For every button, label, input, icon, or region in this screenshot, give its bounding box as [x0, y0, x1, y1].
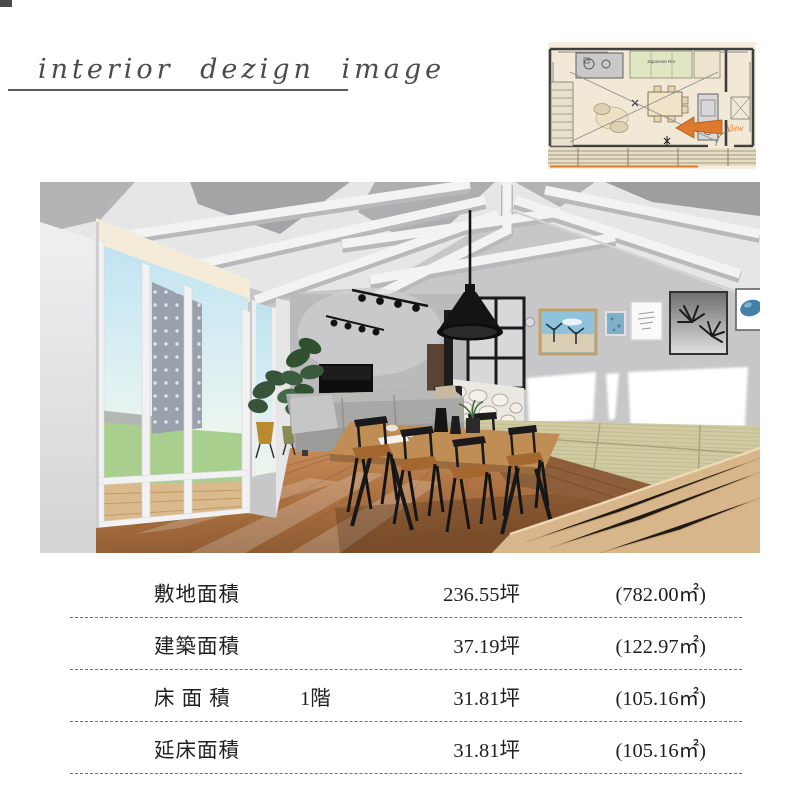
page-title: interior dezign image	[38, 54, 445, 85]
wall-sconce	[526, 318, 535, 327]
frame-blue-oval	[736, 289, 760, 330]
interior-rendering	[40, 182, 760, 553]
row-label: 延床面積	[70, 733, 300, 763]
row-sqm-value: (782.00㎡)	[520, 577, 742, 607]
frame-bw-palms	[670, 292, 727, 354]
table-row-building-area: 建築面積 37.19坪 (122.97㎡)	[70, 618, 742, 670]
frame-beach-photo	[540, 310, 596, 354]
row-label: 敷地面積	[70, 577, 300, 607]
throw-blanket	[290, 395, 338, 434]
row-sqm-value: (105.16㎡)	[520, 733, 742, 763]
floor-plan-thumbnail: Japanese Rm	[548, 42, 756, 169]
row-floor: 1階	[300, 681, 362, 711]
row-label: 建築面積	[70, 629, 300, 659]
plan-kitchen	[576, 53, 623, 78]
plan-bath	[731, 97, 750, 119]
row-sqm-value: (105.16㎡)	[520, 681, 742, 711]
row-tsubo-value: 37.19坪	[362, 629, 520, 659]
left-wall	[40, 222, 96, 553]
plan-japanese-room: Japanese Rm	[630, 51, 692, 78]
scan-corner-mark	[0, 0, 12, 7]
plan-stairs	[551, 82, 573, 146]
row-tsubo-value: 31.81坪	[362, 681, 520, 711]
patterned-screen	[152, 282, 202, 434]
frame-typography	[631, 302, 662, 340]
row-label: 床 面 積	[70, 681, 300, 711]
presentation-page: interior dezign image	[0, 0, 800, 800]
interior-rendering-graphic	[40, 182, 760, 553]
table-row-floor-area: 床 面 積 1階 31.81坪 (105.16㎡)	[70, 670, 742, 722]
table-row-site-area: 敷地面積 236.55坪 (782.00㎡)	[70, 566, 742, 618]
row-tsubo-value: 236.55坪	[362, 577, 520, 607]
plan-deck	[548, 148, 756, 167]
title-underline	[8, 89, 348, 91]
window-frame-edge	[96, 222, 99, 532]
row-sqm-value: (122.97㎡)	[520, 629, 742, 659]
floor-plan-graphic: Japanese Rm	[548, 42, 756, 169]
row-tsubo-value: 31.81坪	[362, 733, 520, 763]
plan-japanese-room-label: Japanese Rm	[647, 59, 676, 64]
area-table: 敷地面積 236.55坪 (782.00㎡) 建築面積 37.19坪 (122.…	[70, 566, 742, 774]
plan-closet	[694, 51, 720, 78]
table-row-total-floor-area: 延床面積 31.81坪 (105.16㎡)	[70, 722, 742, 774]
frame-blue-abstract-small	[606, 312, 625, 335]
sofa-cushion	[435, 385, 457, 399]
